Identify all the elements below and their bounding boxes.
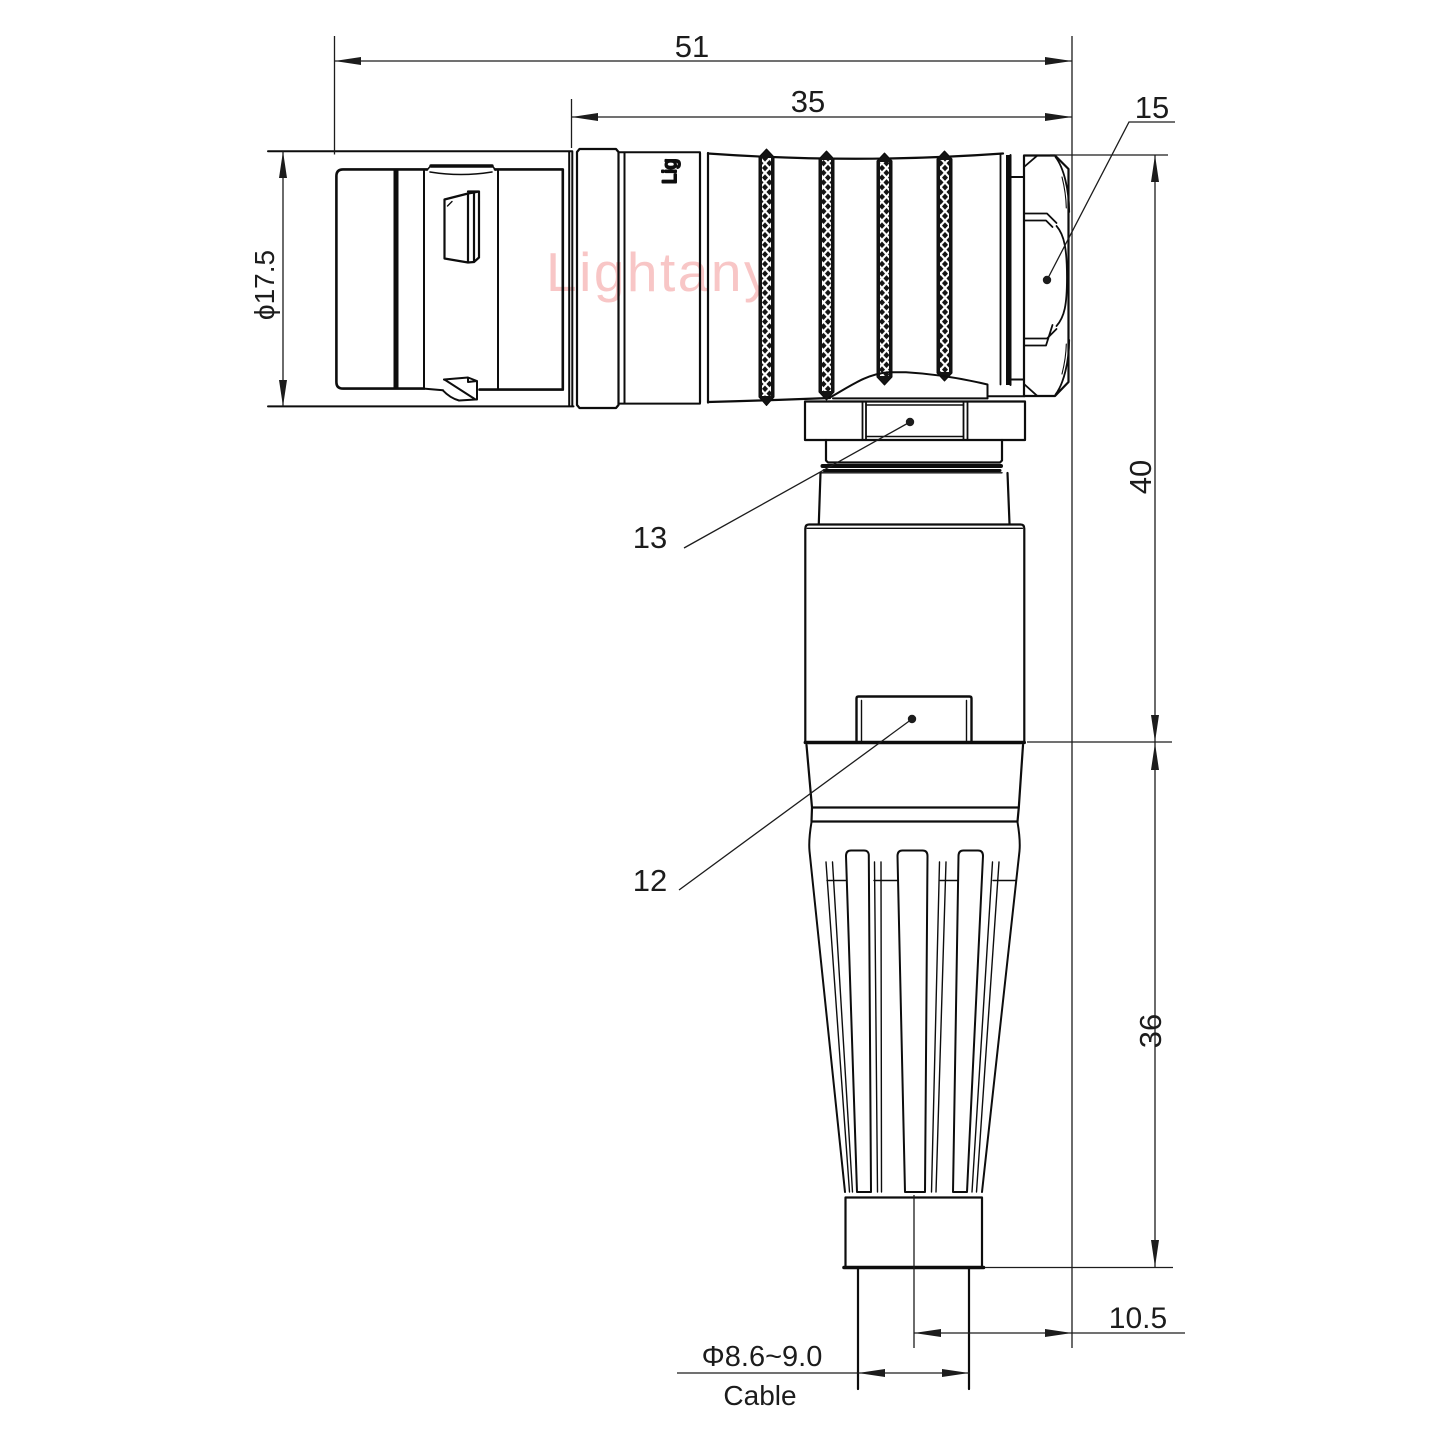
svg-text:Φ8.6~9.0: Φ8.6~9.0 [702,1341,823,1373]
svg-text:13: 13 [633,520,667,555]
svg-text:Lig: Lig [660,159,681,184]
svg-text:51: 51 [675,29,709,64]
svg-text:40: 40 [1123,460,1158,494]
svg-text:10.5: 10.5 [1109,1302,1167,1335]
svg-text:36: 36 [1133,1014,1168,1048]
svg-text:Cable: Cable [723,1380,796,1411]
svg-text:35: 35 [791,84,825,119]
svg-text:Lightany: Lightany [546,241,774,303]
svg-text:12: 12 [633,863,667,898]
svg-text:ϕ17.5: ϕ17.5 [249,250,280,320]
svg-text:15: 15 [1135,90,1169,125]
